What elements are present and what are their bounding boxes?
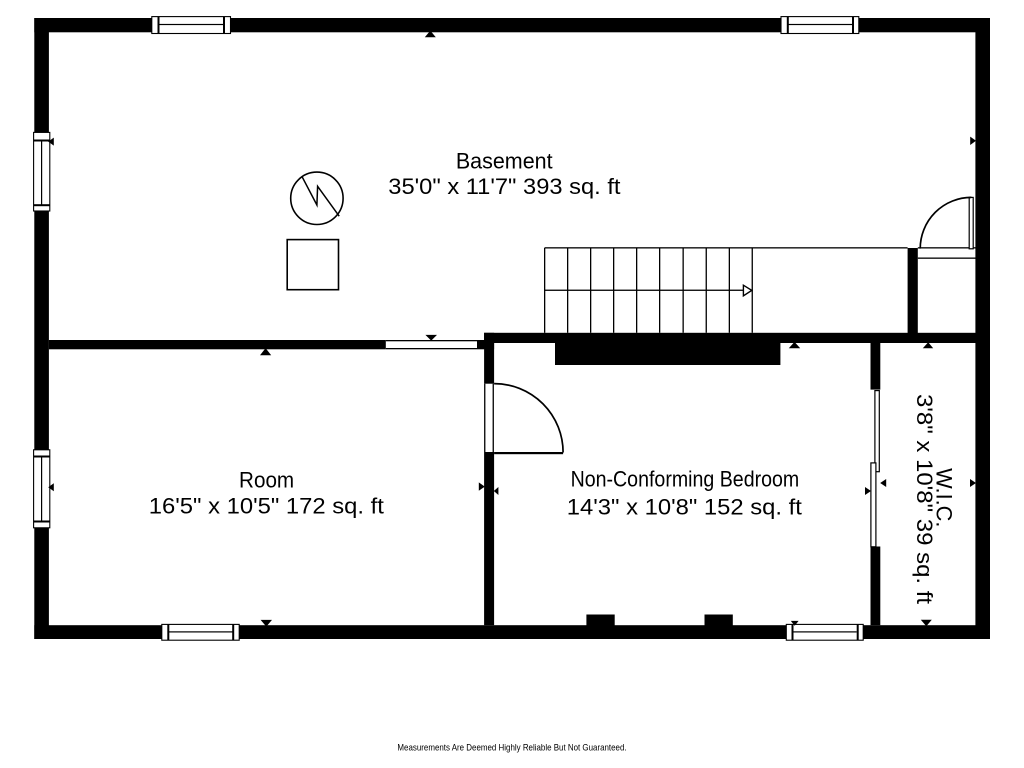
svg-text:14'3" x 10'8" 152 sq. ft: 14'3" x 10'8" 152 sq. ft	[567, 494, 803, 519]
svg-text:Measurements Are Deemed Highly: Measurements Are Deemed Highly Reliable …	[397, 742, 626, 753]
svg-text:Basement: Basement	[456, 148, 553, 173]
svg-text:35'0" x 11'7" 393 sq. ft: 35'0" x 11'7" 393 sq. ft	[388, 174, 621, 199]
svg-text:Room: Room	[239, 468, 294, 493]
svg-text:16'5" x 10'5" 172 sq. ft: 16'5" x 10'5" 172 sq. ft	[149, 493, 385, 518]
svg-text:Non-Conforming Bedroom: Non-Conforming Bedroom	[571, 467, 800, 491]
svg-text:3'8" x 10'8" 39 sq. ft: 3'8" x 10'8" 39 sq. ft	[912, 394, 937, 605]
